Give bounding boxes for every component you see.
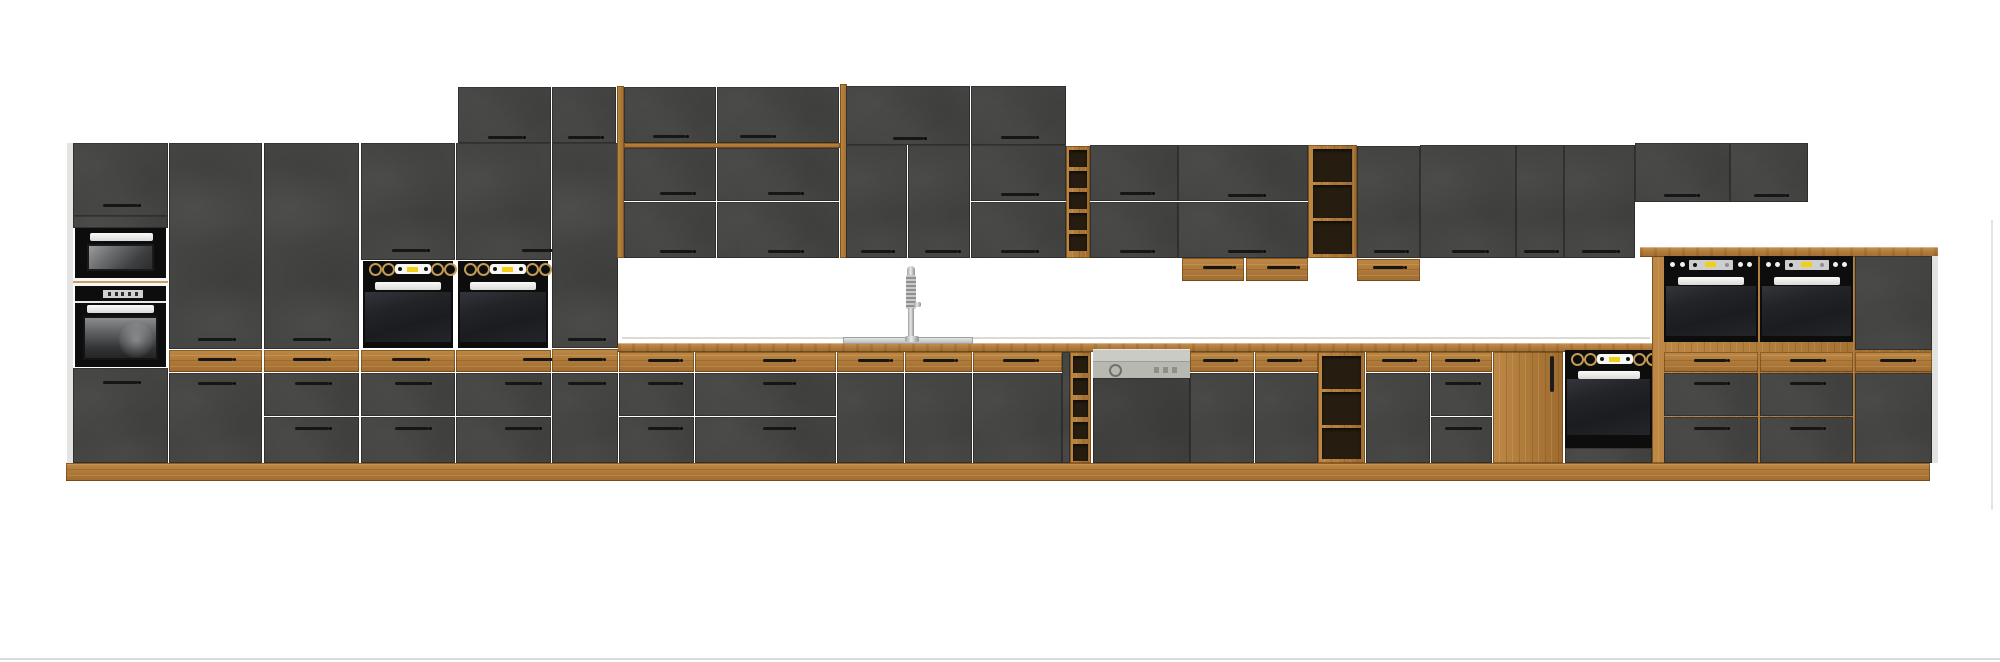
faucet-side-spout — [914, 302, 921, 307]
tall-larder-door — [264, 143, 359, 349]
door-handle — [522, 249, 556, 252]
base-drawer — [264, 417, 359, 463]
door-handle — [1228, 194, 1263, 197]
door-handle — [768, 192, 801, 195]
shelf-cubby — [1322, 356, 1361, 389]
shelf-cubby — [1313, 149, 1352, 182]
base-door — [1255, 373, 1318, 463]
highboard-door — [1855, 256, 1932, 350]
oven-display — [103, 290, 143, 298]
plinth — [66, 463, 1930, 481]
drawer-handle — [505, 382, 539, 385]
oak-drawer — [1190, 352, 1254, 372]
drawer-handle — [392, 358, 427, 361]
door-handle — [1120, 250, 1152, 253]
door-handle — [653, 135, 686, 138]
tall-larder-door — [169, 143, 262, 349]
oak-drawer — [695, 352, 836, 372]
shelf-cubby — [1069, 213, 1087, 230]
door-handle — [1374, 250, 1406, 253]
shelf-cubby — [1073, 444, 1088, 461]
door-handle — [103, 204, 138, 207]
door-handle — [392, 249, 427, 252]
sink-base-door — [837, 373, 904, 463]
oak-drawer — [1431, 352, 1492, 372]
door-handle — [103, 381, 138, 384]
drawer-handle — [1203, 359, 1235, 362]
oven-door-glass — [1666, 286, 1756, 336]
base-door — [552, 373, 618, 463]
door-handle — [1524, 250, 1556, 253]
door-handle — [1452, 250, 1486, 253]
door-handle — [488, 136, 523, 139]
dishwasher-control-strip — [1093, 349, 1190, 362]
base-drawer — [695, 417, 836, 463]
faucet-stem — [908, 308, 914, 337]
drawer-handle — [1790, 382, 1823, 385]
base-drawer — [1664, 373, 1758, 416]
door-handle — [568, 136, 601, 139]
oak-drawer — [169, 350, 262, 372]
under-cabinet-oak-drawer — [1246, 258, 1308, 281]
oak-drawer — [619, 352, 694, 372]
door-handle — [568, 338, 603, 341]
oven-control-panel — [1664, 257, 1758, 272]
base-drawer — [1431, 373, 1492, 416]
drawer-handle — [1880, 359, 1913, 362]
shelf-cubby — [1322, 392, 1361, 425]
oak-drawer — [973, 352, 1062, 372]
door-handle — [293, 338, 328, 341]
oak-drawer — [1366, 352, 1430, 372]
oven-base-strip — [1565, 448, 1652, 463]
door-handle — [1664, 194, 1697, 197]
wall-cabinet-door — [1516, 145, 1564, 258]
drawer-handle — [1694, 427, 1727, 430]
oak-drawer — [1255, 352, 1318, 372]
drawer-handle — [295, 427, 329, 430]
under-cabinet-oak-drawer — [1182, 258, 1244, 281]
oven-handle — [1578, 371, 1640, 379]
shelf-cubby — [1313, 221, 1352, 254]
base-drawer — [1431, 417, 1492, 463]
base-drawer — [1760, 417, 1853, 463]
base-drawer — [456, 417, 551, 463]
oak-drawer — [1855, 352, 1932, 372]
dishwasher-dial — [1109, 364, 1122, 377]
drawer-handle — [1003, 359, 1036, 362]
drawer-handle — [648, 427, 680, 430]
kitchen-product-image — [0, 0, 2000, 662]
door-handle — [1228, 250, 1263, 253]
oven-door-glass — [1762, 286, 1851, 336]
drawer-handle — [1694, 359, 1727, 362]
oven-control-panel — [458, 261, 548, 277]
oven-housing-door — [361, 143, 455, 260]
door-handle — [1754, 194, 1786, 197]
highboard-door — [1855, 373, 1932, 463]
oak-drawer — [837, 352, 904, 372]
oven-door-glass — [365, 292, 451, 342]
drawer-handle — [395, 427, 429, 430]
wall-cabinet-door — [846, 145, 907, 258]
door-handle — [1001, 193, 1036, 196]
drawer-handle — [1790, 359, 1823, 362]
door-handle — [1001, 250, 1036, 253]
drawer-handle — [505, 427, 539, 430]
shelf-cubby — [1069, 192, 1087, 209]
drawer-handle — [763, 382, 793, 385]
shelf-cubby — [1069, 234, 1087, 251]
wall-cabinet-door — [1564, 145, 1635, 258]
shelf-cubby — [1069, 150, 1087, 167]
shelf-cubby — [1073, 400, 1088, 417]
microwave-handle — [90, 233, 153, 241]
drawer-handle — [1382, 359, 1414, 362]
oak-drawer — [361, 350, 455, 372]
counter-back-edge — [622, 337, 1650, 339]
drawer-handle — [858, 359, 890, 362]
shelf-cubby — [1069, 171, 1087, 188]
oven-handle — [1678, 277, 1744, 285]
base-door — [169, 373, 262, 463]
shelf-cubby — [1322, 428, 1361, 459]
wall-top-box — [552, 87, 616, 143]
wall-top-box — [717, 87, 839, 143]
shelf-cubby — [1073, 356, 1088, 373]
sink-base-door — [905, 373, 972, 463]
base-filler — [1062, 352, 1070, 463]
drawer-handle — [198, 358, 233, 361]
drawer-handle — [293, 358, 328, 361]
oven-control-panel — [363, 261, 453, 277]
base-drawer — [619, 373, 694, 416]
door-handle — [740, 135, 773, 138]
oven-control-panel — [1565, 350, 1652, 368]
drawer-handle — [295, 382, 329, 385]
oven-housing-door — [456, 143, 551, 260]
drawer-handle — [1790, 427, 1823, 430]
base-drawer — [456, 373, 551, 416]
oak-drawer — [1760, 352, 1853, 372]
wall-cabinet-door — [908, 145, 970, 258]
image-bottom-edge — [0, 658, 2000, 660]
base-drawer — [361, 373, 455, 416]
oven-door-glass — [460, 292, 546, 342]
drawer-handle — [923, 359, 955, 362]
dishwasher-panel — [1093, 362, 1190, 378]
door-handle — [893, 137, 924, 140]
base-door — [973, 373, 1062, 463]
wall-top-box — [458, 87, 551, 143]
oak-drawer — [456, 350, 551, 372]
door-handle — [660, 250, 693, 253]
oak-drawer — [905, 352, 972, 372]
oven-handle — [375, 282, 441, 290]
dishwasher-door-panel — [1093, 378, 1190, 463]
under-cabinet-oak-drawer — [1357, 259, 1420, 281]
drawer-handle — [1267, 266, 1297, 269]
door-handle — [660, 192, 693, 195]
drawer-handle — [395, 382, 429, 385]
drawer-handle — [568, 358, 603, 361]
door-handle — [925, 250, 958, 253]
oven-trim-line — [75, 301, 166, 303]
base-drawer — [264, 373, 359, 416]
faucet-base — [905, 336, 919, 342]
oven-window — [83, 316, 158, 360]
oven-door-glass — [1567, 379, 1650, 435]
oven-handle — [87, 305, 154, 313]
canopy-oak-post — [617, 86, 624, 258]
faucet — [903, 266, 923, 342]
oak-drawer — [264, 350, 359, 372]
base-drawer — [695, 373, 836, 416]
dishwasher-buttons — [1154, 367, 1180, 373]
door-handle — [861, 250, 892, 253]
door-handle — [768, 250, 801, 253]
drawer-handle — [648, 382, 680, 385]
highboard-side-panel — [1932, 256, 1938, 463]
drawer-handle — [1203, 266, 1233, 269]
drawer-handle — [648, 359, 680, 362]
image-right-edge — [1991, 220, 1993, 510]
drawer-handle — [1445, 382, 1478, 385]
drawer-handle — [763, 359, 793, 362]
base-drawer — [1760, 373, 1853, 416]
base-door — [1190, 373, 1254, 463]
oak-shelf-line — [73, 281, 168, 283]
vertical-door-handle — [1550, 356, 1554, 392]
microwave-window — [87, 244, 154, 271]
oven-handle — [470, 282, 536, 290]
shelf-cubby — [1313, 185, 1352, 218]
tall-cabinet-door — [552, 143, 618, 348]
drawer-handle — [1267, 359, 1299, 362]
door-handle — [198, 338, 233, 341]
drawer-handle — [763, 427, 793, 430]
door-handle — [198, 382, 233, 385]
drawer-handle — [1694, 382, 1727, 385]
tall-unit-panel — [73, 216, 168, 228]
oak-drawer — [1664, 352, 1758, 372]
base-drawer — [619, 417, 694, 463]
base-drawer — [1664, 417, 1758, 463]
door-handle — [1120, 192, 1152, 195]
drawer-handle — [1445, 427, 1479, 430]
base-door — [1366, 373, 1430, 463]
door-handle — [568, 382, 603, 385]
shelf-cubby — [1073, 378, 1088, 395]
wall-cabinet-door — [1420, 145, 1516, 258]
wall-cabinet-door — [1357, 146, 1420, 258]
door-handle — [1582, 250, 1617, 253]
oven-control-panel — [1760, 257, 1853, 272]
drawer-handle — [1445, 359, 1477, 362]
flap-door — [1178, 145, 1308, 201]
oven-handle — [1774, 277, 1840, 285]
drawer-handle — [1373, 266, 1404, 269]
door-handle — [1001, 136, 1036, 139]
shelf-cubby — [1073, 422, 1088, 439]
base-drawer — [361, 417, 455, 463]
